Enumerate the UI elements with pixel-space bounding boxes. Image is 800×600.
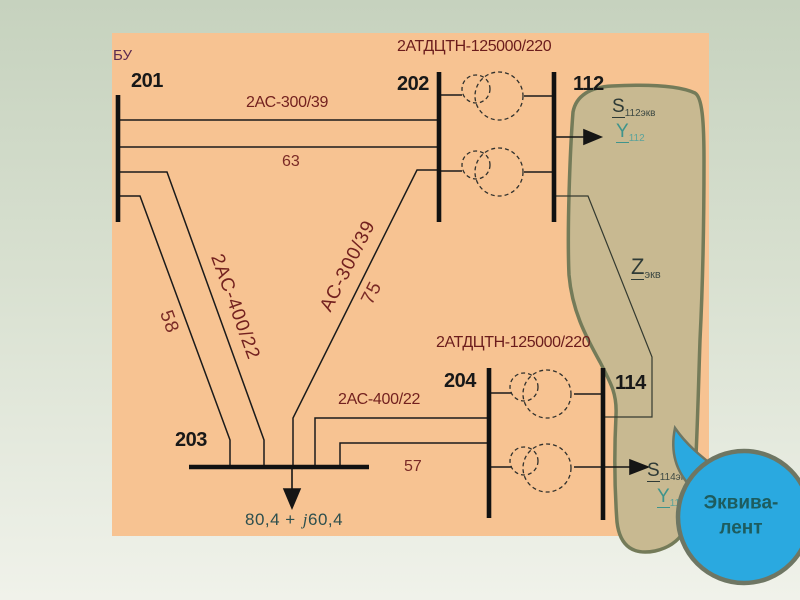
callout-text: Эквива- лент (704, 491, 779, 540)
slide: БУ 201 202 112 203 204 114 2АТДЦТН-12500… (0, 0, 800, 600)
callout-text-line1: Эквива- (704, 491, 779, 516)
callout-text-line2: лент (704, 516, 779, 541)
callout-layer (0, 0, 800, 600)
